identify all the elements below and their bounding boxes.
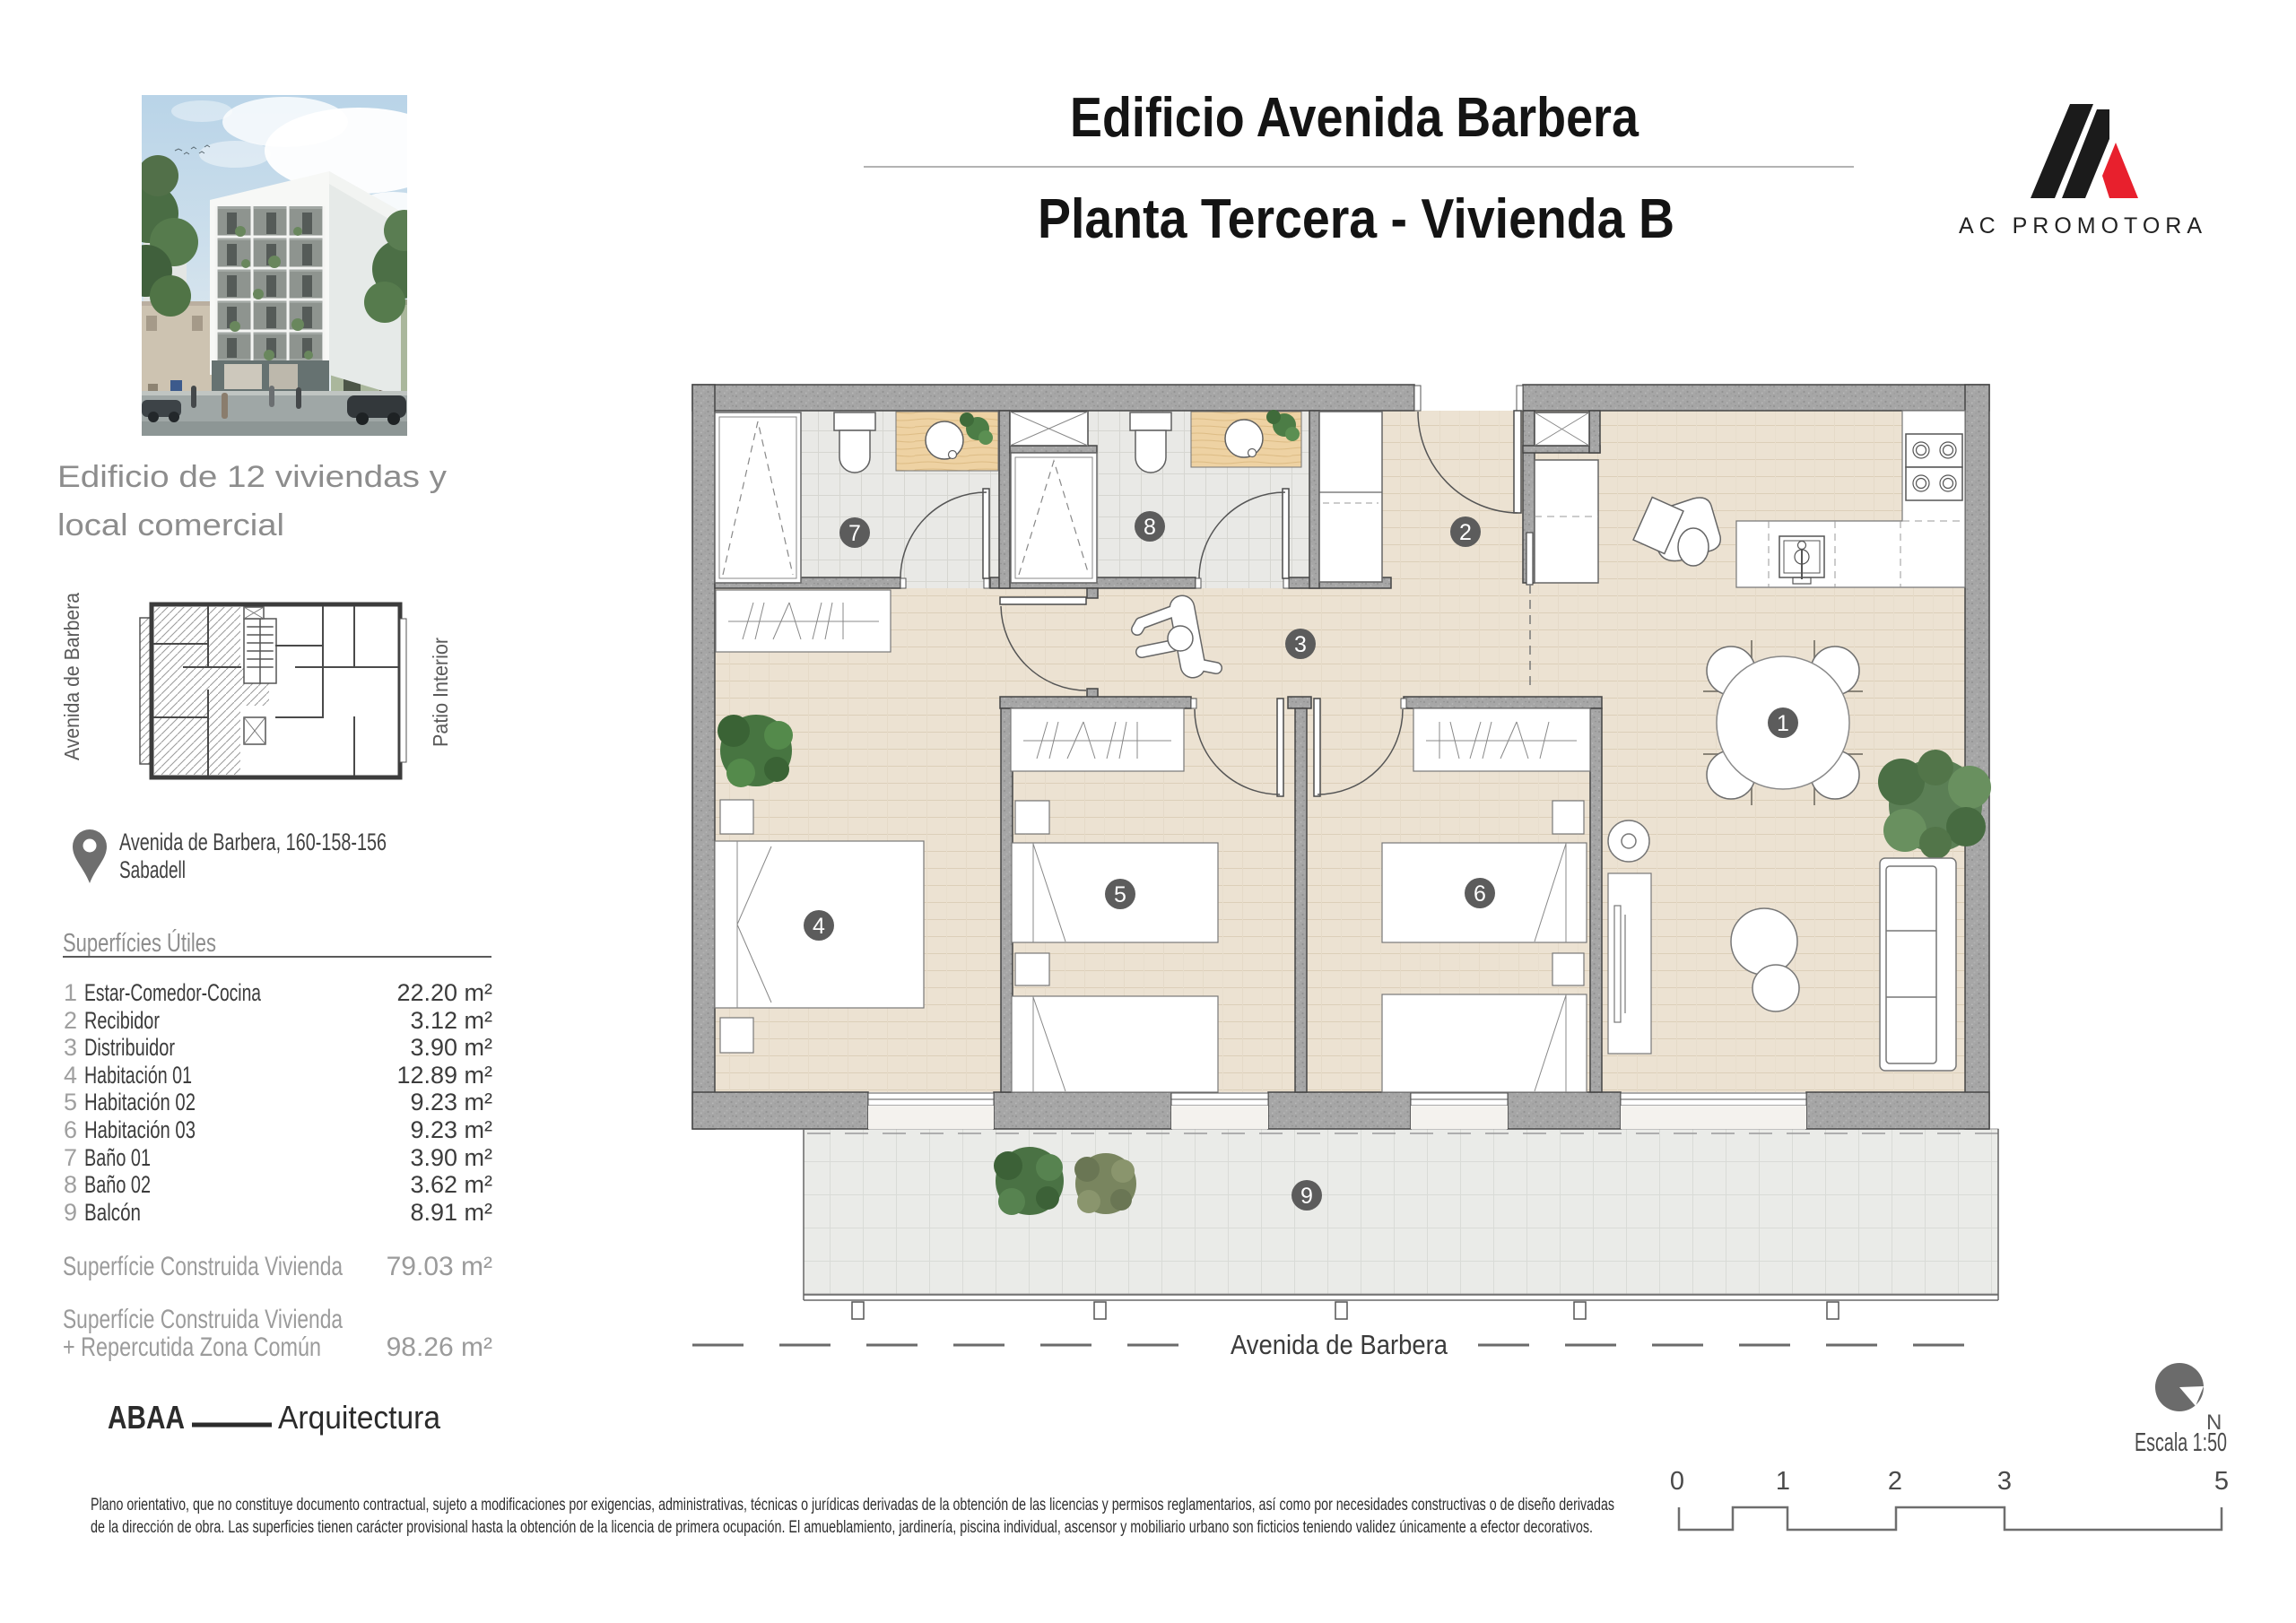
svg-text:8.91 m²: 8.91 m² [410, 1199, 492, 1226]
svg-text:79.03 m²: 79.03 m² [387, 1252, 492, 1281]
svg-text:Habitación 02: Habitación 02 [84, 1089, 196, 1115]
svg-text:9: 9 [64, 1199, 77, 1226]
svg-text:Balcón: Balcón [84, 1199, 141, 1226]
svg-text:2: 2 [1459, 520, 1472, 545]
svg-text:1: 1 [64, 979, 77, 1006]
svg-text:Recibidor: Recibidor [84, 1007, 160, 1034]
svg-text:Escala 1:50: Escala 1:50 [2135, 1428, 2227, 1457]
svg-text:4: 4 [813, 914, 825, 939]
svg-text:+ Repercutida Zona Común: + Repercutida Zona Común [63, 1332, 321, 1362]
svg-text:12.89 m²: 12.89 m² [396, 1062, 492, 1089]
svg-text:5: 5 [2214, 1467, 2229, 1496]
svg-text:6: 6 [1474, 881, 1486, 907]
svg-text:3.62 m²: 3.62 m² [410, 1171, 492, 1198]
svg-text:Avenida de Barbera: Avenida de Barbera [60, 593, 83, 760]
svg-text:1: 1 [1776, 1467, 1790, 1496]
svg-text:Baño 01: Baño 01 [84, 1144, 151, 1171]
svg-text:2: 2 [1888, 1467, 1902, 1496]
svg-text:3.90 m²: 3.90 m² [410, 1034, 492, 1061]
svg-text:local comercial: local comercial [57, 508, 284, 542]
svg-text:Avenida de Barbera, 160-158-15: Avenida de Barbera, 160-158-156 [119, 829, 387, 855]
svg-text:Habitación 03: Habitación 03 [84, 1116, 196, 1143]
svg-text:de la dirección de obra. Las s: de la dirección de obra. Las superficies… [91, 1518, 1593, 1537]
svg-text:Baño 02: Baño 02 [84, 1171, 151, 1198]
svg-text:AC PROMOTORA: AC PROMOTORA [1959, 213, 2208, 239]
svg-text:98.26 m²: 98.26 m² [387, 1332, 492, 1362]
svg-text:Plano orientativo, que no cons: Plano orientativo, que no constituye doc… [91, 1496, 1614, 1515]
svg-text:22.20 m²: 22.20 m² [396, 979, 492, 1006]
svg-text:Patio Interior: Patio Interior [429, 638, 452, 747]
svg-text:Edificio Avenida Barbera: Edificio Avenida Barbera [1070, 87, 1639, 149]
svg-text:Distribuidor: Distribuidor [84, 1034, 175, 1061]
svg-text:3.90 m²: 3.90 m² [410, 1144, 492, 1171]
svg-text:ABAA: ABAA [108, 1399, 185, 1436]
svg-text:3.12 m²: 3.12 m² [410, 1007, 492, 1034]
svg-text:5: 5 [64, 1089, 77, 1115]
svg-text:Superfície Construida Vivienda: Superfície Construida Vivienda [63, 1252, 343, 1281]
svg-text:Edificio de 12 viviendas y: Edificio de 12 viviendas y [57, 460, 447, 494]
svg-text:Avenida de Barbera: Avenida de Barbera [1231, 1329, 1448, 1360]
svg-text:Habitación 01: Habitación 01 [84, 1062, 192, 1089]
svg-text:9.23 m²: 9.23 m² [410, 1089, 492, 1115]
svg-text:9: 9 [1300, 1184, 1313, 1209]
svg-text:9.23 m²: 9.23 m² [410, 1116, 492, 1143]
svg-text:0: 0 [1670, 1467, 1684, 1496]
svg-text:6: 6 [64, 1116, 77, 1143]
svg-text:3: 3 [1294, 632, 1307, 657]
svg-text:2: 2 [64, 1007, 77, 1034]
svg-text:Superfície Construida Vivienda: Superfície Construida Vivienda [63, 1305, 343, 1334]
svg-text:7: 7 [64, 1144, 77, 1171]
svg-text:1: 1 [1777, 711, 1789, 736]
svg-text:Sabadell: Sabadell [119, 856, 186, 883]
svg-text:Estar-Comedor-Cocina: Estar-Comedor-Cocina [84, 979, 262, 1006]
svg-text:Planta Tercera - Vivienda B: Planta Tercera - Vivienda B [1038, 188, 1674, 250]
svg-text:5: 5 [1114, 882, 1126, 907]
svg-text:8: 8 [64, 1171, 77, 1198]
svg-text:8: 8 [1144, 515, 1156, 540]
svg-text:3: 3 [64, 1034, 77, 1061]
svg-text:7: 7 [848, 521, 861, 546]
svg-text:Arquitectura: Arquitectura [278, 1399, 441, 1436]
svg-text:3: 3 [1997, 1467, 2012, 1496]
svg-text:Superfícies Útiles: Superfícies Útiles [63, 928, 216, 958]
svg-text:4: 4 [64, 1062, 77, 1089]
